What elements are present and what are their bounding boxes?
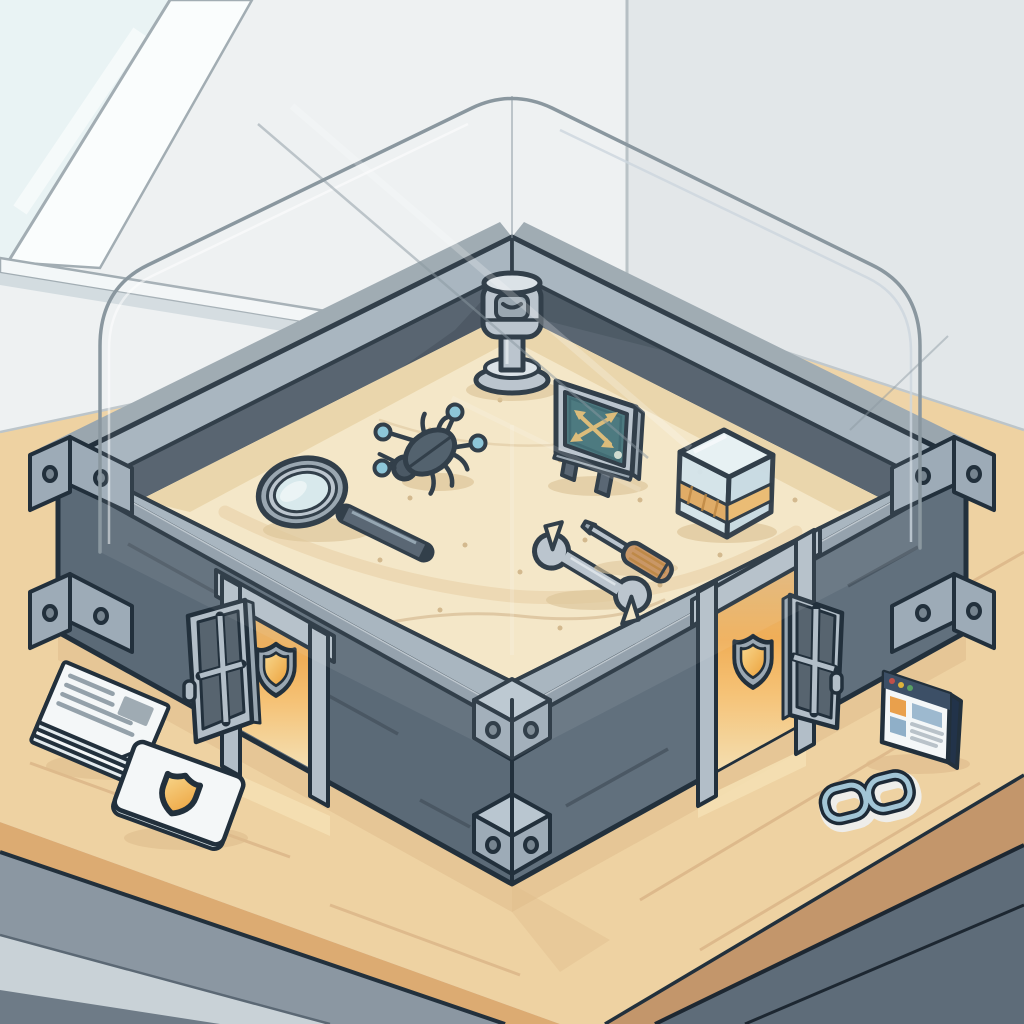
illustration-canvas: Isometric cartoon illustration of a secu… (0, 0, 1024, 1024)
bolt (487, 838, 499, 852)
bolt (95, 609, 107, 623)
titlebar-dot-red (889, 678, 895, 684)
right-gate-door (783, 595, 842, 728)
bolt (968, 467, 980, 481)
bolt (44, 606, 56, 620)
bolt (525, 838, 537, 852)
titlebar-dot-green (907, 685, 913, 691)
sandbox-illustration: Isometric cartoon illustration of a secu… (0, 0, 1024, 1024)
bolt (968, 604, 980, 618)
shield-icon (741, 645, 765, 678)
door-handle (184, 681, 195, 701)
shield-icon (264, 653, 288, 686)
bolt (44, 467, 56, 481)
titlebar-dot-yellow (898, 682, 904, 688)
bolt (917, 606, 929, 620)
door-handle (831, 673, 842, 693)
